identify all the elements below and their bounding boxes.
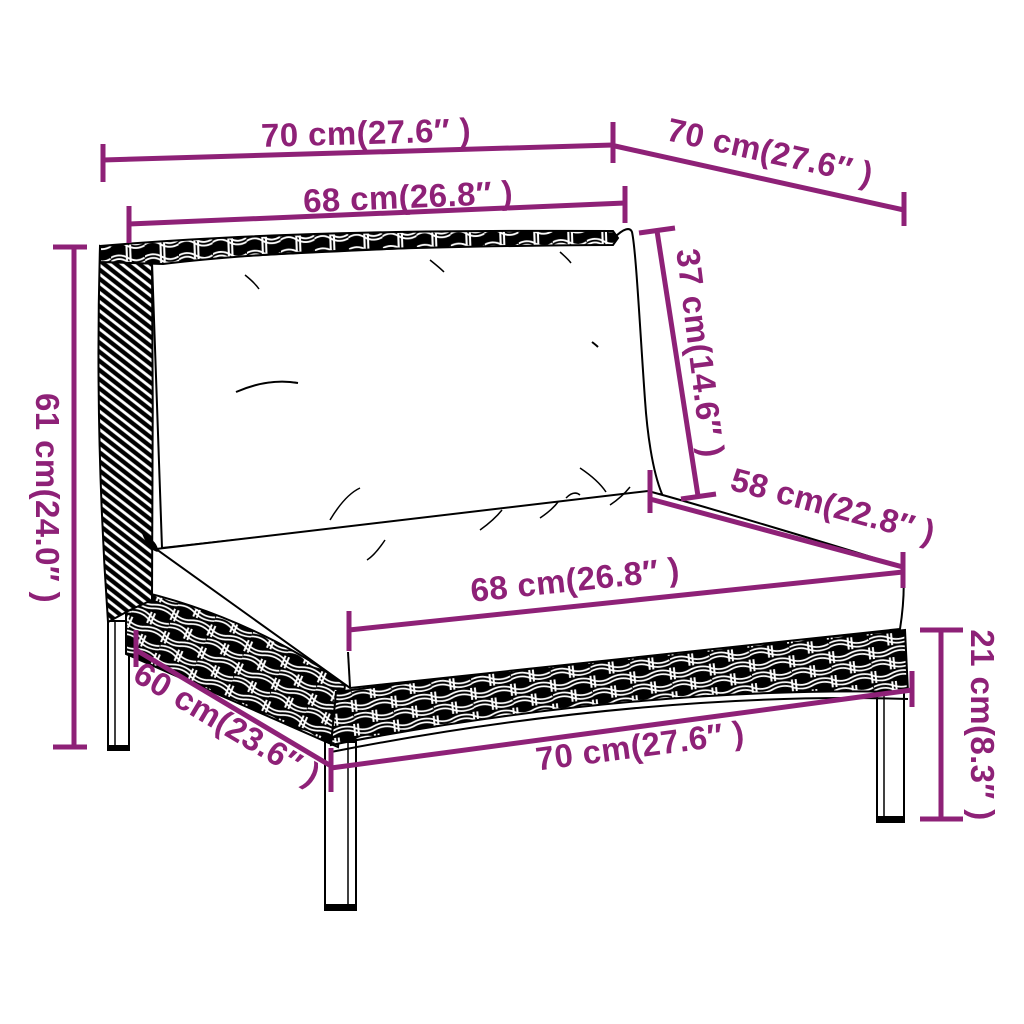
svg-text:70 cm(27.6″ ): 70 cm(27.6″ ) bbox=[261, 111, 472, 154]
svg-text:61 cm(24.0″ ): 61 cm(24.0″ ) bbox=[29, 393, 66, 603]
svg-text:21 cm(8.3″ ): 21 cm(8.3″ ) bbox=[964, 629, 1001, 820]
